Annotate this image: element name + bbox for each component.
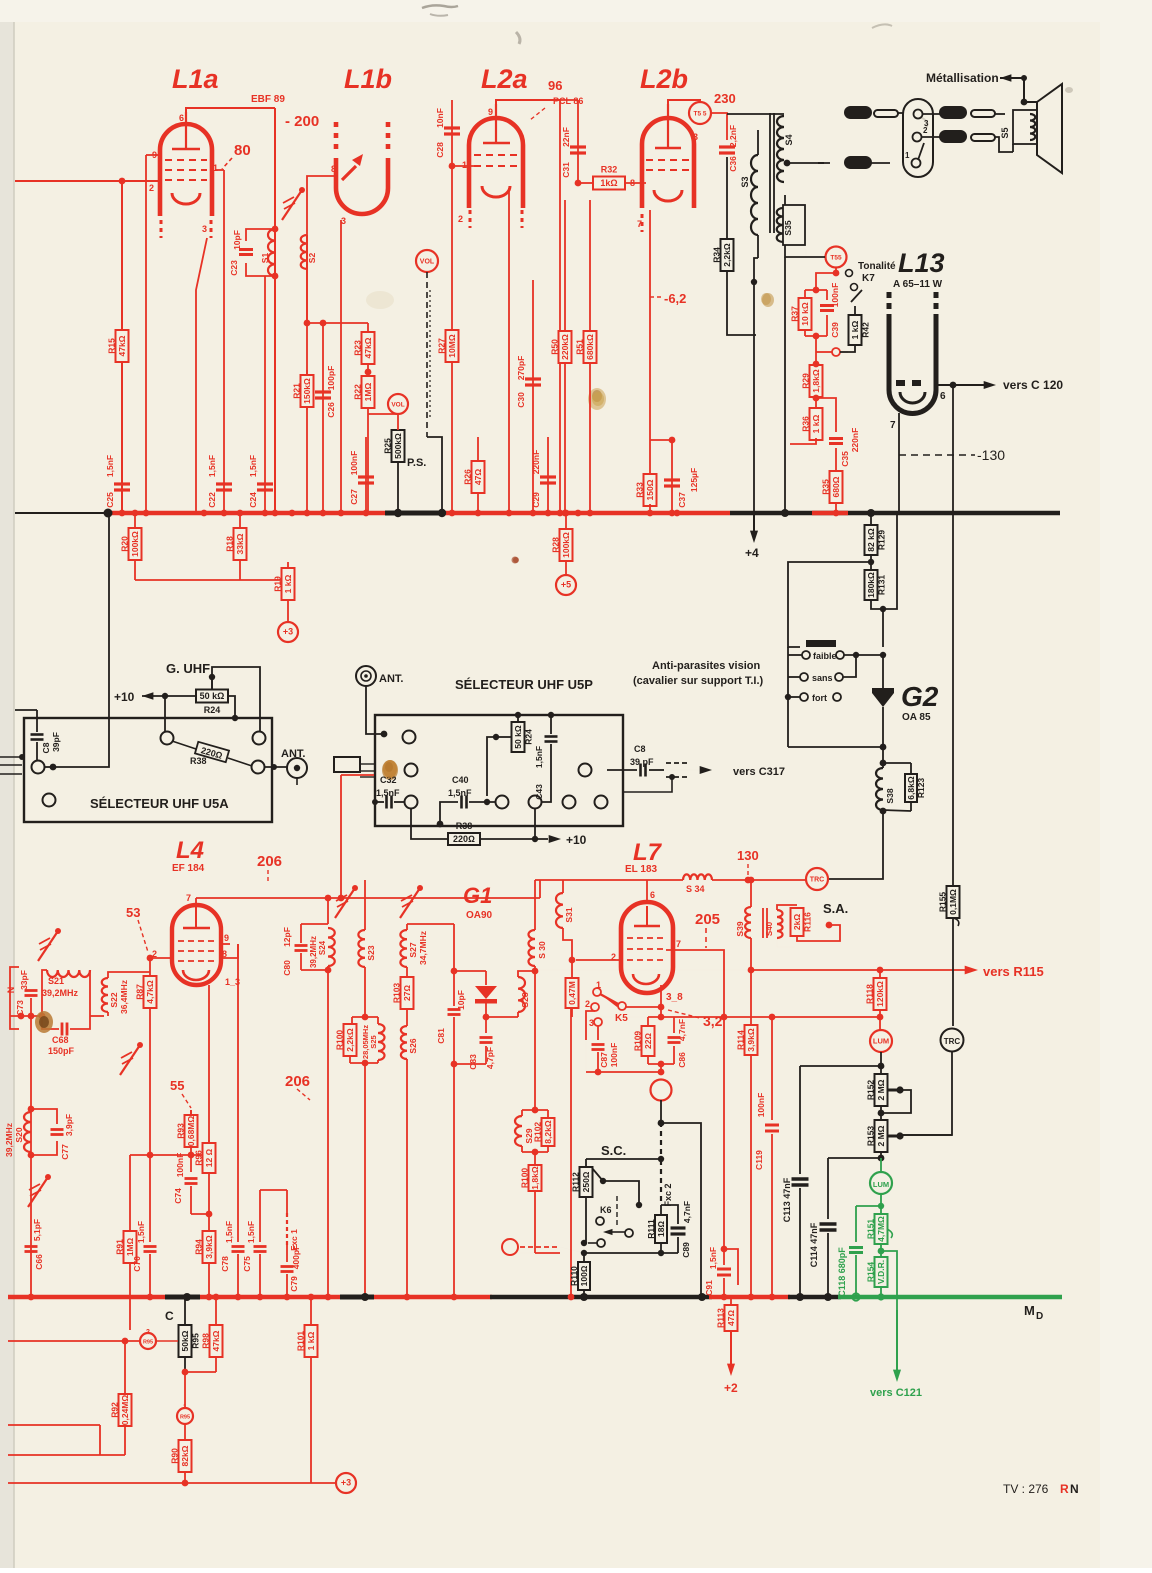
svg-text:+2: +2: [724, 1381, 738, 1395]
svg-text:C83: C83: [468, 1054, 478, 1070]
svg-text:1,5nF: 1,5nF: [376, 788, 400, 798]
svg-text:vers C317: vers C317: [733, 766, 785, 778]
svg-text:C89: C89: [681, 1242, 691, 1258]
svg-text:R15: R15: [107, 338, 117, 354]
svg-text:EL 183: EL 183: [625, 864, 657, 875]
svg-text:C: C: [165, 1309, 174, 1323]
svg-text:220nF: 220nF: [531, 450, 541, 475]
svg-text:S27: S27: [408, 942, 418, 957]
svg-text:33kΩ: 33kΩ: [235, 533, 245, 554]
svg-text:R129: R129: [877, 530, 887, 551]
svg-text:2: 2: [149, 183, 154, 193]
svg-text:C31: C31: [561, 162, 571, 178]
svg-text:Tonalité: Tonalité: [858, 261, 896, 272]
svg-text:2: 2: [458, 214, 463, 224]
svg-text:220kΩ: 220kΩ: [560, 334, 570, 360]
svg-text:6: 6: [179, 113, 184, 123]
svg-text:6,8kΩ: 6,8kΩ: [906, 776, 916, 800]
svg-text:55: 55: [170, 1078, 184, 1093]
svg-text:180kΩ: 180kΩ: [866, 572, 876, 598]
svg-text:18Ω: 18Ω: [656, 1221, 666, 1237]
svg-text:3: 3: [202, 224, 207, 234]
svg-text:C23: C23: [229, 260, 239, 276]
svg-text:R116: R116: [803, 912, 813, 932]
svg-text:82 kΩ: 82 kΩ: [866, 528, 876, 552]
svg-text:205: 205: [695, 911, 720, 928]
svg-text:C118 680pF: C118 680pF: [837, 1247, 847, 1297]
svg-text:39,2MHz: 39,2MHz: [4, 1123, 14, 1157]
svg-text:P.S.: P.S.: [407, 457, 426, 469]
svg-text:2 MΩ: 2 MΩ: [876, 1125, 886, 1146]
svg-text:1 kΩ: 1 kΩ: [850, 321, 860, 340]
svg-text:53: 53: [126, 905, 140, 920]
svg-text:3_8: 3_8: [666, 992, 683, 1003]
svg-text:10pF: 10pF: [232, 230, 242, 250]
svg-text:L1a: L1a: [172, 64, 219, 94]
svg-text:R112: R112: [571, 1172, 581, 1192]
svg-text:10nF: 10nF: [435, 108, 445, 128]
svg-text:1,5nF: 1,5nF: [224, 1221, 234, 1243]
svg-text:R27: R27: [437, 338, 447, 354]
svg-text:C66: C66: [34, 1254, 44, 1270]
svg-text:R24: R24: [524, 729, 534, 745]
svg-text:9: 9: [488, 107, 493, 117]
svg-text:R35: R35: [821, 479, 831, 495]
svg-text:2: 2: [146, 1329, 150, 1336]
svg-text:7: 7: [186, 893, 191, 903]
svg-text:1,5nF: 1,5nF: [105, 455, 115, 477]
svg-text:100nF: 100nF: [756, 1093, 766, 1118]
svg-text:3: 3: [693, 132, 698, 142]
svg-text:150Ω: 150Ω: [645, 479, 655, 500]
svg-text:1MΩ: 1MΩ: [125, 1237, 135, 1256]
svg-text:39 pF: 39 pF: [630, 757, 654, 767]
svg-text:-130: -130: [977, 447, 1005, 463]
svg-text:R24: R24: [204, 705, 221, 715]
svg-text:TRC: TRC: [944, 1037, 961, 1046]
svg-text:N: N: [6, 987, 16, 994]
svg-text:EF 184: EF 184: [172, 863, 205, 874]
svg-text:R95: R95: [143, 1340, 153, 1346]
svg-text:R22: R22: [353, 384, 363, 400]
svg-text:100nF: 100nF: [349, 451, 359, 476]
svg-text:C87: C87: [599, 1052, 609, 1068]
svg-text:R118: R118: [865, 984, 875, 1004]
svg-text:G. UHF: G. UHF: [166, 661, 210, 676]
svg-text:G1: G1: [463, 883, 492, 908]
svg-text:3,9pF: 3,9pF: [64, 1114, 74, 1136]
svg-text:Fxc 2: Fxc 2: [663, 1183, 673, 1206]
svg-text:vers C 120: vers C 120: [1003, 378, 1063, 392]
svg-text:K7: K7: [862, 273, 875, 284]
svg-text:TRC: TRC: [810, 877, 824, 884]
svg-text:OA 85: OA 85: [902, 712, 931, 723]
svg-text:L2b: L2b: [640, 64, 688, 94]
svg-text:sans: sans: [812, 673, 833, 683]
svg-text:C80: C80: [282, 960, 292, 976]
svg-text:1,8kΩ: 1,8kΩ: [811, 369, 821, 393]
svg-text:0,47M: 0,47M: [567, 981, 577, 1005]
svg-text:C43: C43: [534, 784, 544, 800]
svg-text:400pF: 400pF: [291, 1245, 301, 1270]
svg-text:C75: C75: [242, 1256, 252, 1272]
svg-text:34,7MHz: 34,7MHz: [418, 931, 428, 965]
svg-text:Anti-parasites vision: Anti-parasites vision: [652, 660, 760, 672]
svg-text:82kΩ: 82kΩ: [180, 1445, 190, 1466]
svg-text:fort: fort: [812, 693, 827, 703]
svg-text:4,7nF: 4,7nF: [682, 1201, 692, 1223]
svg-text:4,7kΩ: 4,7kΩ: [145, 980, 155, 1004]
svg-text:2,2kΩ: 2,2kΩ: [345, 1028, 355, 1052]
svg-text:3,9kΩ: 3,9kΩ: [746, 1028, 756, 1052]
svg-text:R131: R131: [877, 575, 887, 596]
svg-text:22nF: 22nF: [561, 127, 571, 147]
svg-text:R94: R94: [194, 1239, 204, 1255]
svg-text:D: D: [1036, 1311, 1043, 1322]
svg-text:C39: C39: [830, 322, 840, 338]
svg-text:R36: R36: [801, 416, 811, 432]
svg-text:150kΩ: 150kΩ: [302, 378, 312, 404]
svg-text:V.D.R.: V.D.R.: [876, 1260, 886, 1284]
svg-text:OA90: OA90: [466, 910, 493, 921]
svg-text:7: 7: [890, 420, 896, 431]
svg-text:4,7nF: 4,7nF: [677, 1019, 687, 1041]
svg-text:vers R115: vers R115: [983, 964, 1044, 979]
svg-text:36,4MHz: 36,4MHz: [119, 980, 129, 1014]
svg-text:L7: L7: [633, 839, 663, 866]
svg-text:M: M: [1024, 1303, 1035, 1318]
svg-text:faible: faible: [813, 651, 837, 661]
svg-text:1 kΩ: 1 kΩ: [306, 1332, 316, 1351]
svg-text:47kΩ: 47kΩ: [363, 337, 373, 358]
svg-text:1MΩ: 1MΩ: [363, 383, 373, 402]
svg-text:R33: R33: [635, 482, 645, 498]
svg-text:100kΩ: 100kΩ: [130, 531, 140, 557]
svg-text:7: 7: [637, 219, 642, 229]
svg-text:1,5nF: 1,5nF: [246, 1221, 256, 1243]
svg-text:R34: R34: [712, 247, 722, 263]
svg-text:2,2kΩ: 2,2kΩ: [722, 243, 732, 267]
svg-text:100pF: 100pF: [326, 366, 336, 391]
svg-text:1,5nF: 1,5nF: [248, 455, 258, 477]
svg-text:39,2MHz: 39,2MHz: [42, 988, 79, 998]
svg-text:R87: R87: [135, 984, 145, 1000]
svg-text:5,1pF: 5,1pF: [32, 1219, 42, 1241]
svg-text:R154: R154: [866, 1262, 876, 1283]
svg-text:- 200: - 200: [285, 113, 319, 130]
svg-text:+10: +10: [114, 690, 135, 704]
svg-text:S26: S26: [408, 1038, 418, 1053]
svg-text:S3: S3: [740, 176, 750, 187]
svg-text:R: R: [1060, 1482, 1069, 1496]
svg-text:0,1MΩ: 0,1MΩ: [948, 889, 958, 915]
svg-text:C35: C35: [840, 451, 850, 467]
svg-text:96: 96: [548, 78, 562, 93]
svg-text:S4: S4: [784, 134, 794, 145]
svg-text:S23: S23: [366, 945, 376, 960]
svg-text:220nF: 220nF: [850, 428, 860, 453]
svg-text:206: 206: [285, 1073, 310, 1090]
svg-text:C113 47nF: C113 47nF: [782, 1177, 792, 1222]
svg-text:R93: R93: [176, 1123, 186, 1139]
svg-text:S.A.: S.A.: [823, 901, 848, 916]
svg-text:C86: C86: [677, 1052, 687, 1068]
svg-text:S2: S2: [307, 253, 317, 264]
svg-text:100Ω: 100Ω: [579, 1265, 589, 1286]
svg-text:125µF: 125µF: [689, 468, 699, 492]
svg-text:C91: C91: [704, 1280, 714, 1296]
svg-text:2 MΩ: 2 MΩ: [876, 1079, 886, 1100]
svg-text:130: 130: [737, 848, 759, 863]
svg-text:R19: R19: [273, 576, 283, 592]
svg-text:S1: S1: [260, 253, 270, 264]
svg-text:8,2kΩ: 8,2kΩ: [543, 1120, 553, 1144]
svg-text:1,5nF: 1,5nF: [207, 455, 217, 477]
svg-text:C22: C22: [207, 492, 217, 508]
svg-text:R38: R38: [456, 821, 473, 831]
svg-text:R103: R103: [392, 983, 402, 1004]
svg-text:206: 206: [257, 853, 282, 870]
svg-text:C26: C26: [326, 402, 336, 418]
svg-text:10pF: 10pF: [456, 990, 466, 1010]
svg-text:R28: R28: [551, 537, 561, 553]
svg-text:R113: R113: [716, 1308, 726, 1328]
svg-text:6: 6: [940, 391, 946, 402]
svg-text:N: N: [1070, 1482, 1079, 1496]
svg-text:SÉLECTEUR UHF U5P: SÉLECTEUR UHF U5P: [455, 677, 593, 692]
svg-text:EBF 89: EBF 89: [251, 94, 285, 105]
svg-text:50 kΩ: 50 kΩ: [513, 725, 523, 749]
svg-text:C81: C81: [436, 1028, 446, 1044]
svg-text:R20: R20: [120, 536, 130, 552]
svg-text:R25: R25: [383, 438, 393, 454]
svg-text:R51: R51: [575, 339, 585, 355]
svg-text:+3: +3: [283, 627, 293, 637]
svg-text:R101: R101: [296, 1331, 306, 1352]
svg-text:R114: R114: [736, 1030, 746, 1050]
svg-text:1: 1: [905, 151, 910, 160]
svg-text:C40: C40: [452, 775, 469, 785]
svg-text:0,68MΩ: 0,68MΩ: [186, 1116, 196, 1147]
svg-text:S38: S38: [885, 788, 895, 803]
svg-text:C73: C73: [15, 1000, 25, 1016]
svg-text:6: 6: [650, 890, 655, 900]
svg-text:LUM: LUM: [873, 1180, 889, 1189]
svg-text:3,2: 3,2: [703, 1013, 723, 1029]
svg-text:K6: K6: [600, 1205, 612, 1215]
svg-text:2,2nF: 2,2nF: [728, 125, 738, 147]
svg-text:50kΩ: 50kΩ: [180, 1330, 190, 1351]
svg-text:S24: S24: [318, 940, 327, 955]
svg-text:10MΩ: 10MΩ: [447, 334, 457, 358]
svg-text:1,5nF: 1,5nF: [534, 746, 544, 768]
svg-text:680kΩ: 680kΩ: [585, 334, 595, 360]
svg-text:1: 1: [213, 163, 218, 173]
svg-text:S39: S39: [735, 921, 745, 936]
svg-text:(cavalier sur support T.I.): (cavalier sur support T.I.): [633, 675, 764, 687]
svg-text:C77: C77: [60, 1144, 70, 1160]
svg-text:R37: R37: [790, 306, 800, 322]
svg-text:R18: R18: [225, 536, 235, 552]
svg-text:C8: C8: [634, 744, 646, 754]
svg-text:A 65–11 W: A 65–11 W: [893, 279, 943, 290]
svg-text:C78: C78: [220, 1256, 230, 1272]
svg-text:TV : 276: TV : 276: [1003, 1482, 1049, 1496]
svg-text:VOL: VOL: [420, 259, 435, 266]
svg-text:R151: R151: [866, 1219, 876, 1240]
svg-text:C36: C36: [728, 156, 738, 172]
svg-text:R95: R95: [180, 1415, 190, 1421]
svg-text:C29: C29: [531, 492, 541, 508]
svg-text:1 kΩ: 1 kΩ: [283, 575, 293, 594]
svg-text:C30: C30: [516, 392, 526, 408]
svg-text:R100: R100: [520, 1168, 530, 1189]
svg-text:T55: T55: [830, 255, 842, 262]
svg-text:R50: R50: [550, 339, 560, 355]
svg-text:230: 230: [714, 91, 736, 106]
svg-text:100nF: 100nF: [830, 283, 840, 308]
svg-text:C79: C79: [289, 1276, 299, 1292]
svg-text:C114 47nF: C114 47nF: [809, 1222, 819, 1267]
svg-text:G2: G2: [901, 681, 939, 712]
svg-text:39,2MHz: 39,2MHz: [309, 936, 318, 968]
svg-text:S28: S28: [520, 992, 530, 1007]
svg-text:S40: S40: [765, 921, 774, 936]
svg-text:1: 1: [183, 1404, 187, 1411]
svg-text:R100: R100: [335, 1030, 345, 1051]
svg-text:1,8kΩ: 1,8kΩ: [530, 1166, 540, 1190]
svg-text:K5: K5: [615, 1013, 628, 1024]
svg-text:R153: R153: [866, 1126, 876, 1147]
svg-text:L13: L13: [898, 248, 945, 278]
svg-text:150pF: 150pF: [48, 1046, 75, 1056]
svg-text:R92: R92: [110, 1402, 120, 1418]
svg-text:R29: R29: [801, 373, 811, 389]
svg-text:LUM: LUM: [873, 1037, 889, 1046]
svg-text:-6,2: -6,2: [664, 291, 686, 306]
svg-text:R38: R38: [190, 756, 207, 766]
svg-text:L4: L4: [176, 837, 204, 864]
svg-text:12 Ω: 12 Ω: [204, 1148, 214, 1167]
svg-text:680Ω: 680Ω: [831, 476, 841, 497]
svg-text:47Ω: 47Ω: [726, 1310, 736, 1326]
svg-text:L2a: L2a: [481, 64, 528, 94]
svg-text:Métallisation: Métallisation: [926, 71, 999, 85]
svg-text:47kΩ: 47kΩ: [117, 335, 127, 356]
svg-text:1,5nF: 1,5nF: [448, 788, 472, 798]
svg-text:R152: R152: [866, 1080, 876, 1101]
svg-text:VOL: VOL: [391, 402, 404, 409]
svg-text:C25: C25: [105, 492, 115, 508]
svg-text:C37: C37: [677, 492, 687, 508]
svg-text:100kΩ: 100kΩ: [561, 532, 571, 558]
svg-text:1 kΩ: 1 kΩ: [811, 415, 821, 434]
svg-text:100nF: 100nF: [609, 1043, 619, 1068]
svg-text:R111: R111: [646, 1219, 656, 1239]
svg-text:R42: R42: [861, 322, 871, 338]
svg-text:S35: S35: [783, 220, 793, 235]
svg-text:C28: C28: [435, 142, 445, 158]
svg-text:2kΩ: 2kΩ: [792, 914, 802, 930]
svg-text:R23: R23: [353, 340, 363, 356]
svg-text:C8: C8: [41, 742, 51, 753]
svg-text:R110: R110: [569, 1266, 579, 1286]
svg-text:R91: R91: [115, 1239, 125, 1255]
svg-text:3,9kΩ: 3,9kΩ: [204, 1235, 214, 1259]
svg-text:S21: S21: [48, 976, 64, 986]
svg-text:270pF: 270pF: [516, 356, 526, 381]
svg-text:1kΩ: 1kΩ: [600, 178, 617, 188]
svg-text:S 30: S 30: [537, 941, 547, 959]
svg-text:R32: R32: [601, 165, 618, 175]
svg-text:9: 9: [224, 933, 229, 943]
svg-text:39pF: 39pF: [51, 732, 61, 752]
svg-text:R90: R90: [170, 1448, 180, 1464]
svg-text:100nF: 100nF: [175, 1153, 185, 1178]
svg-text:S20: S20: [14, 1127, 24, 1142]
svg-text:7: 7: [676, 939, 681, 949]
svg-text:S.C.: S.C.: [601, 1143, 626, 1158]
svg-text:80: 80: [234, 142, 251, 159]
svg-text:C70: C70: [132, 1256, 142, 1272]
svg-text:C74: C74: [173, 1188, 183, 1204]
svg-text:S5: S5: [1000, 127, 1010, 138]
svg-text:R109: R109: [633, 1031, 643, 1052]
svg-text:R26: R26: [463, 469, 473, 485]
svg-text:S 34: S 34: [686, 884, 705, 894]
svg-text:250Ω: 250Ω: [581, 1171, 591, 1192]
svg-text:2: 2: [585, 999, 590, 1009]
svg-text:T5 5: T5 5: [693, 111, 706, 118]
svg-text:R98: R98: [201, 1333, 211, 1349]
svg-text:47kΩ: 47kΩ: [211, 1330, 221, 1351]
svg-text:33pF: 33pF: [19, 970, 29, 990]
svg-text:L1b: L1b: [344, 64, 392, 94]
svg-text:R96: R96: [194, 1150, 204, 1166]
svg-text:0,24MΩ: 0,24MΩ: [120, 1395, 130, 1426]
svg-text:27Ω: 27Ω: [402, 985, 412, 1001]
svg-text:1,5nF: 1,5nF: [136, 1221, 146, 1243]
svg-text:1,5nF: 1,5nF: [708, 1247, 718, 1269]
svg-text:C27: C27: [349, 489, 359, 505]
svg-text:1: 1: [462, 160, 467, 170]
svg-text:vers C121: vers C121: [870, 1387, 922, 1399]
svg-text:12pF: 12pF: [282, 927, 292, 947]
svg-text:ANT.: ANT.: [379, 673, 403, 685]
svg-text:S31: S31: [564, 907, 574, 922]
svg-text:+3: +3: [341, 1478, 351, 1488]
svg-text:2: 2: [923, 126, 928, 135]
svg-text:R95: R95: [191, 1333, 201, 1349]
svg-text:S25: S25: [369, 1035, 378, 1048]
svg-text:47Ω: 47Ω: [473, 469, 483, 485]
svg-text:R123: R123: [916, 778, 926, 799]
svg-text:10 kΩ: 10 kΩ: [800, 302, 810, 326]
svg-text:+5: +5: [561, 580, 571, 590]
svg-text:+4: +4: [745, 546, 759, 560]
svg-text:4,7MΩ: 4,7MΩ: [876, 1216, 886, 1242]
svg-text:C24: C24: [248, 492, 258, 508]
svg-text:SÉLECTEUR UHF U5A: SÉLECTEUR UHF U5A: [90, 796, 229, 811]
svg-text:+10: +10: [566, 833, 587, 847]
svg-text:120kΩ: 120kΩ: [875, 981, 885, 1007]
svg-text:500kΩ: 500kΩ: [393, 433, 403, 459]
svg-text:R21: R21: [292, 383, 302, 399]
svg-text:50 kΩ: 50 kΩ: [200, 691, 225, 701]
svg-text:8: 8: [331, 164, 336, 174]
svg-text:R155: R155: [938, 892, 948, 913]
svg-text:R102: R102: [533, 1122, 543, 1143]
